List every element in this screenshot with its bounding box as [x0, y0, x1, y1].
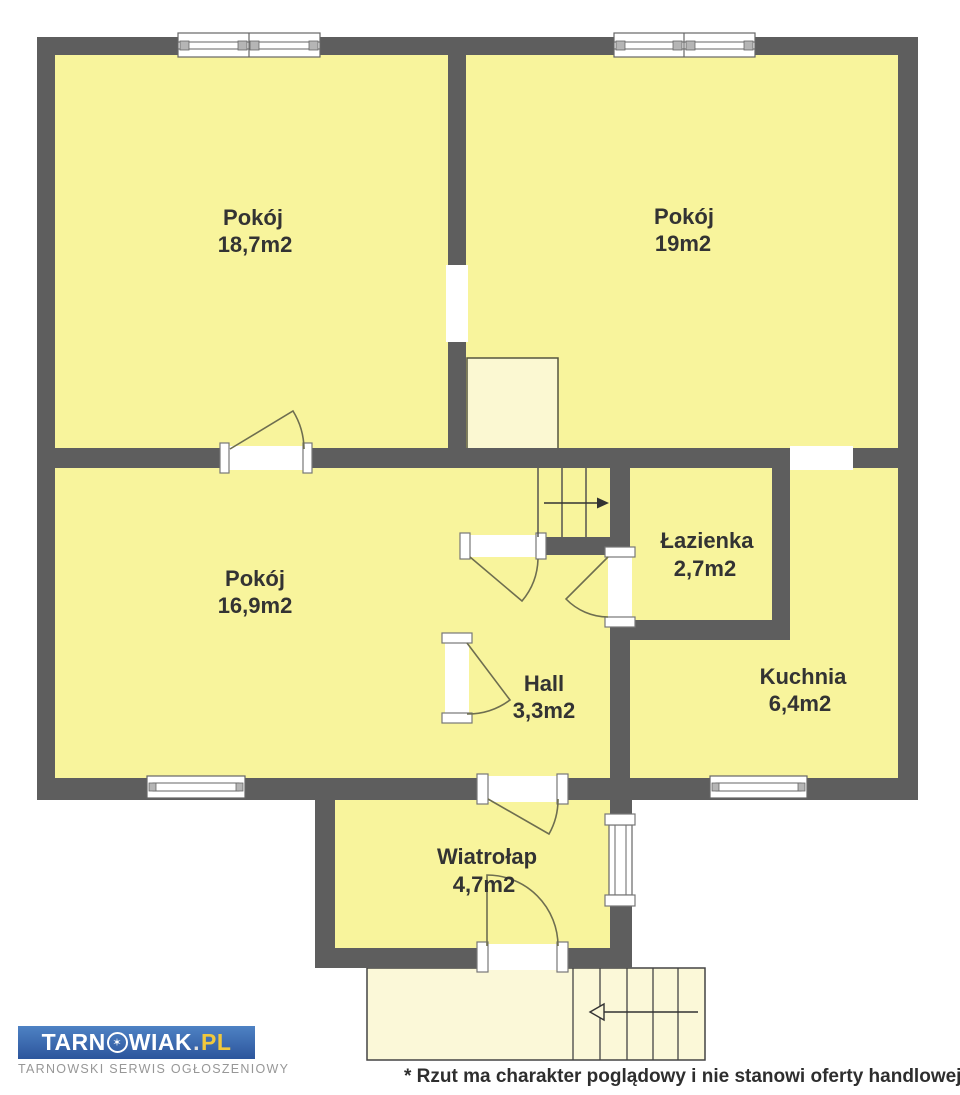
window-room2 — [614, 33, 755, 57]
floor-plan-page: Pokój 18,7m2 Pokój 19m2 Pokój 16,9m2 Łaz… — [0, 0, 960, 1095]
room2-name: Pokój — [654, 204, 714, 229]
wall-middle-horizontal — [55, 448, 898, 468]
door-opening-bathroom — [608, 557, 632, 617]
bathroom-area: 2,7m2 — [674, 556, 736, 581]
passage-kitchen — [790, 446, 853, 470]
chimney-shaft — [467, 358, 558, 451]
door-opening-room3-hall — [445, 643, 469, 713]
window-vestibule — [609, 825, 632, 895]
door-opening-hall-vestibule — [488, 776, 558, 802]
window-kitchen — [710, 776, 807, 798]
room1-name: Pokój — [223, 205, 283, 230]
hall-name: Hall — [524, 671, 564, 696]
logo-text-prefix: TARN — [42, 1029, 106, 1056]
logo-text-suffix: WIAK — [129, 1029, 192, 1056]
door-opening-room1-room3 — [228, 446, 303, 470]
wall-bathroom-bottom — [610, 620, 790, 640]
room3-area: 16,9m2 — [218, 593, 293, 618]
floor-plan-drawing: Pokój 18,7m2 Pokój 19m2 Pokój 16,9m2 Łaz… — [0, 0, 960, 1095]
star-icon: ✶ — [107, 1032, 128, 1053]
bathroom-name: Łazienka — [661, 528, 755, 553]
exterior-stairs — [367, 968, 705, 1060]
logo-tagline: TARNOWSKI SERWIS OGŁOSZENIOWY — [18, 1062, 258, 1076]
wall-right — [898, 37, 918, 800]
wall-vestibule-bottom — [315, 948, 632, 968]
wall-vestibule-left — [315, 778, 335, 968]
wall-left — [37, 37, 55, 800]
room2-area: 19m2 — [655, 231, 711, 256]
disclaimer-text: * Rzut ma charakter poglądowy i nie stan… — [404, 1066, 934, 1088]
floor-areas — [55, 55, 898, 948]
wall-center-vertical — [448, 55, 466, 452]
wall-top — [37, 37, 918, 55]
logo-dot: . — [192, 1029, 201, 1056]
room1-area: 18,7m2 — [218, 232, 293, 257]
hall-area: 3,3m2 — [513, 698, 575, 723]
vestibule-name: Wiatrołap — [437, 844, 537, 869]
door-opening-entrance — [488, 944, 558, 970]
passage-top-rooms — [446, 265, 468, 342]
door-opening-stairs — [470, 535, 537, 557]
vestibule-area: 4,7m2 — [453, 872, 515, 897]
kitchen-name: Kuchnia — [760, 664, 848, 689]
window-room3 — [147, 776, 245, 798]
logo-tld: PL — [201, 1029, 231, 1056]
room3-name: Pokój — [225, 566, 285, 591]
window-room1 — [178, 33, 320, 57]
wall-bathroom-right — [772, 452, 790, 640]
tarnowiak-logo: TARN✶WIAK.PL — [18, 1026, 255, 1059]
kitchen-area: 6,4m2 — [769, 691, 831, 716]
